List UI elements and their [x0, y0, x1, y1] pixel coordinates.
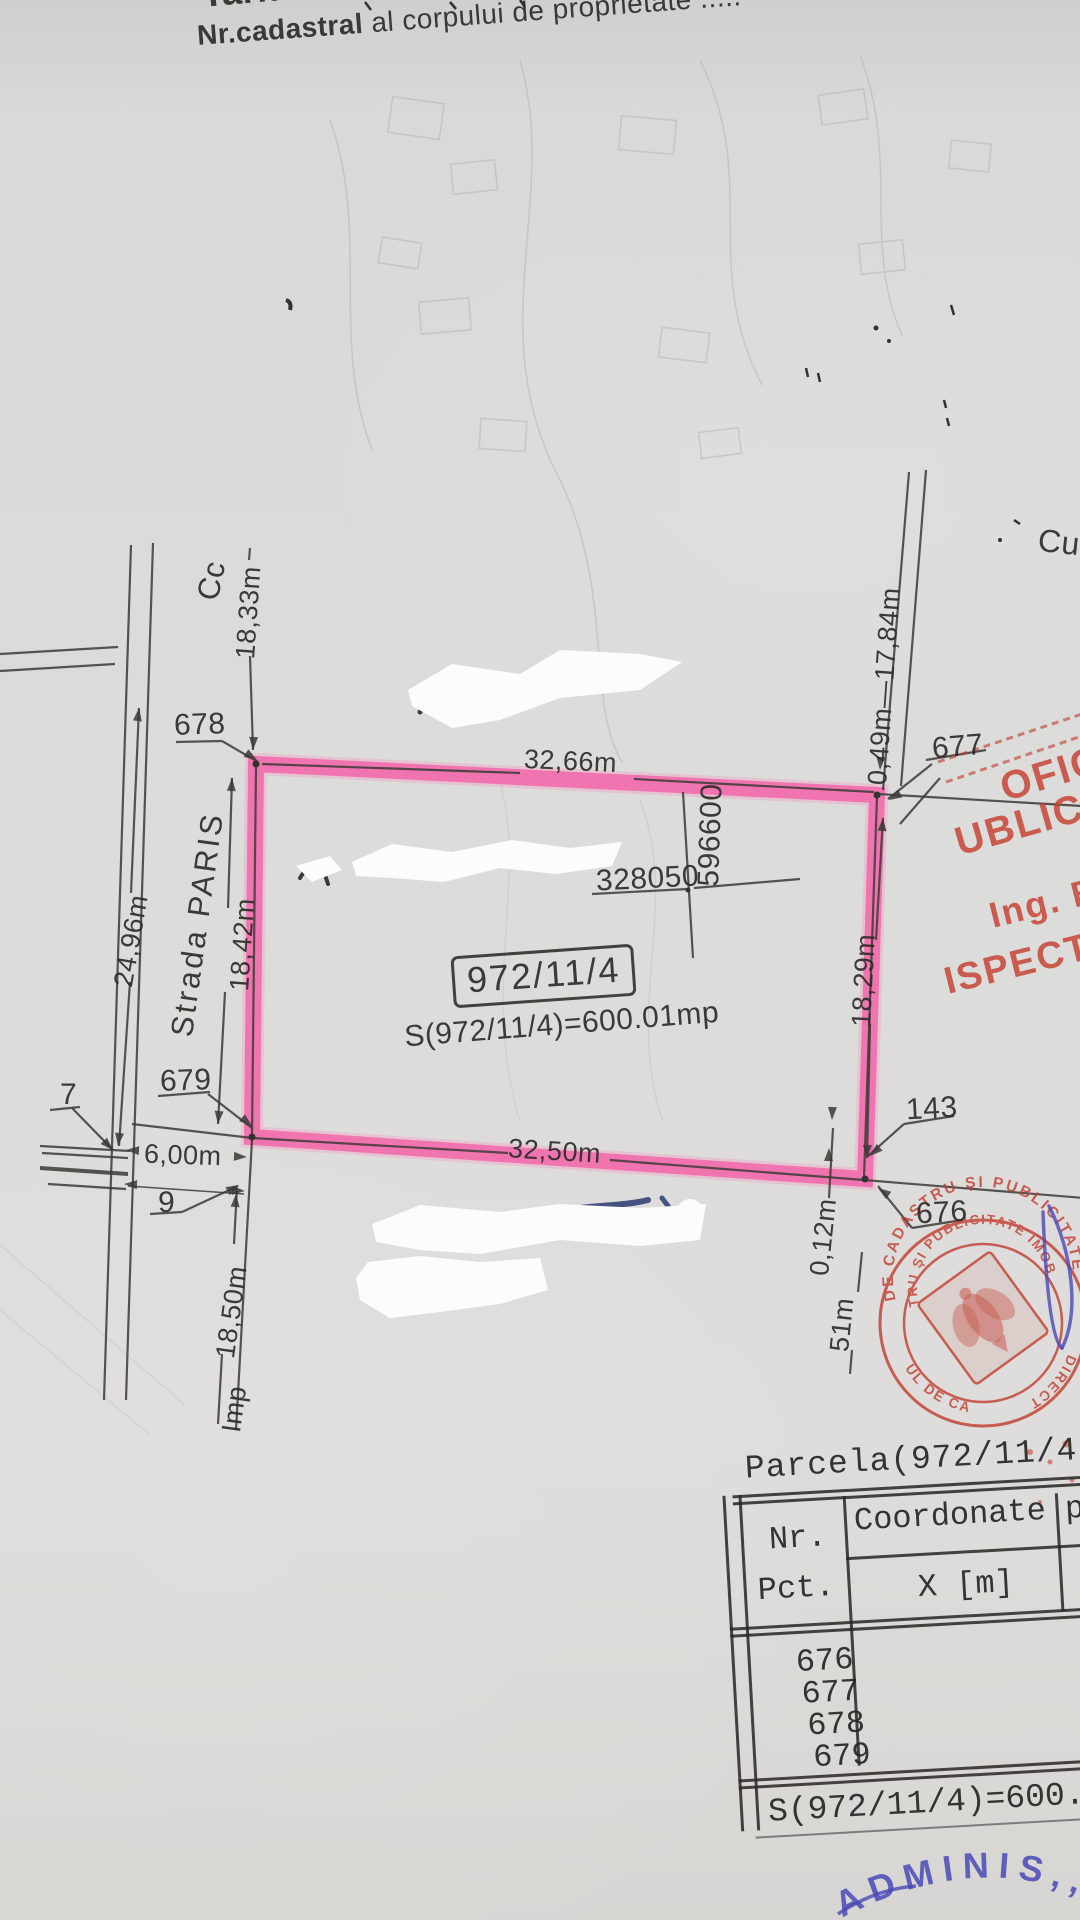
point-143: 143	[905, 1091, 958, 1128]
col-header-x: X [m]	[917, 1564, 1015, 1606]
dim-top: 32,66m	[523, 744, 617, 779]
point-679: 679	[159, 1063, 212, 1099]
dim-right: 18,29m	[846, 933, 882, 1028]
point-676-map: 676	[915, 1195, 968, 1232]
zone-label-cu: Cu	[1036, 522, 1080, 563]
dim-left-top: 18,33m	[230, 565, 267, 660]
cadastral-plan-photo: DE CADASTRU ŞI PUBLICITATE UL DE CA DIRE…	[0, 0, 1080, 1920]
ink-specks	[286, 0, 1020, 542]
col-header-pct: Pct.	[757, 1568, 836, 1609]
svg-text:UL DE CA: UL DE CA	[902, 1361, 973, 1416]
col-header-nr: Nr.	[768, 1518, 828, 1558]
round-stamp-bottom-text: UL DE CA	[902, 1361, 973, 1416]
dim-bottom: 32,50m	[507, 1133, 602, 1170]
hidden-writing-marks	[300, 662, 674, 1214]
table-row-point: 679	[812, 1736, 872, 1776]
dim-bottom-left-prefix: Imp	[216, 1384, 253, 1434]
table-border	[846, 1538, 1080, 1559]
point-678: 678	[173, 707, 226, 743]
dim-left: 18,42m	[224, 897, 261, 992]
grid-y-value: 596600	[692, 783, 730, 887]
dim-right-lower: 51m	[824, 1296, 860, 1353]
dim-gap: 6,00m	[143, 1139, 222, 1173]
grid-x-value: 328050	[595, 859, 700, 898]
coordinate-table: Parcela(972/11/4) Nr. Pct. Coordonate pc…	[720, 1426, 1080, 1920]
coat-of-arms	[917, 1251, 1049, 1385]
point-9: 9	[158, 1186, 175, 1220]
point-677: 677	[931, 728, 985, 766]
point-7: 7	[60, 1078, 77, 1112]
